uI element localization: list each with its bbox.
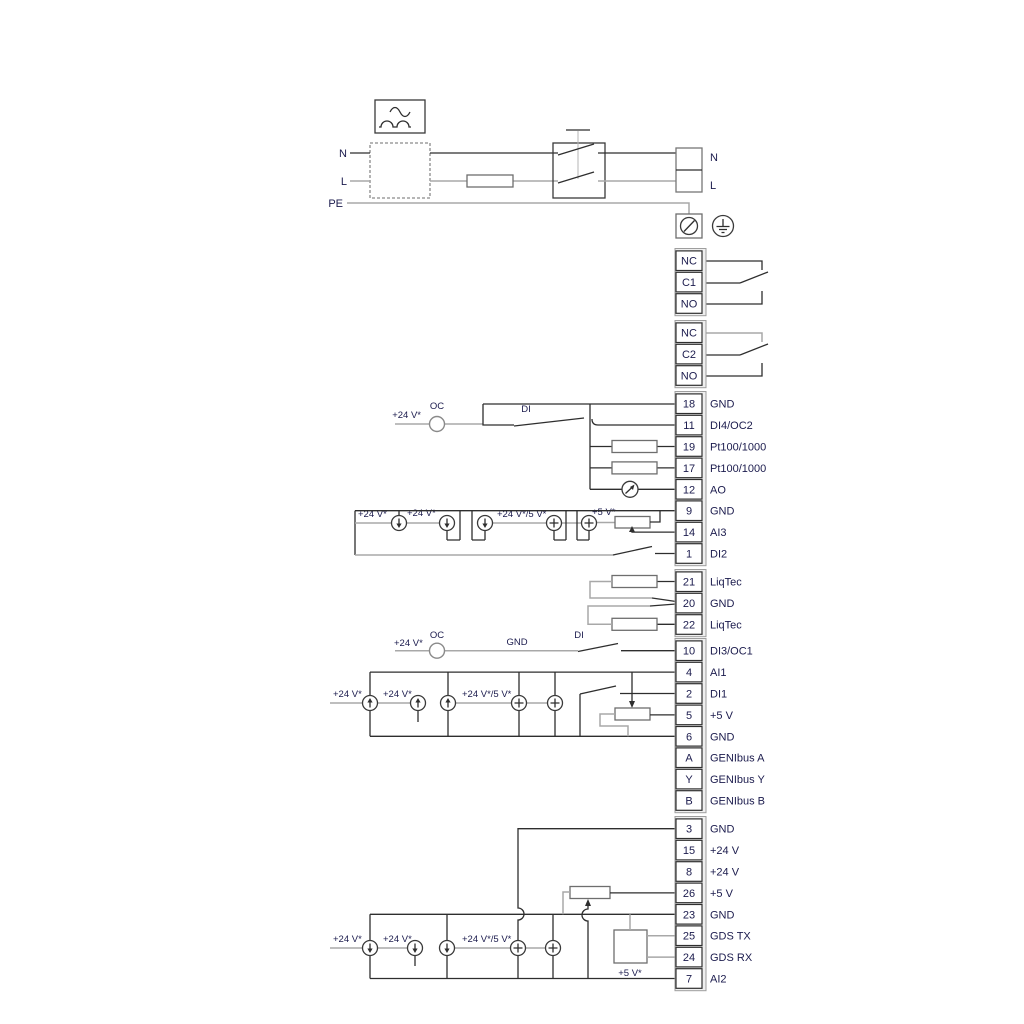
terminal-number: 24 bbox=[683, 952, 695, 964]
relay1-nc-wire bbox=[702, 261, 762, 270]
potentiometer-ai2 bbox=[570, 887, 610, 899]
c2-brackets bbox=[418, 672, 555, 736]
label-plus24v: +24 V* bbox=[392, 410, 421, 421]
label-l-right: L bbox=[710, 180, 716, 192]
terminal-group-relay1: NCC1NO bbox=[675, 249, 706, 316]
terminal-label: DI2 bbox=[710, 549, 727, 561]
current-source-icon bbox=[547, 516, 562, 531]
liqtec-wiring bbox=[588, 576, 676, 631]
terminal-label: GND bbox=[710, 506, 735, 518]
current-source-icon bbox=[440, 941, 455, 956]
label-n-right: N bbox=[710, 152, 718, 164]
current-source-icon bbox=[511, 941, 526, 956]
label-oc: OC bbox=[430, 630, 444, 641]
switch-blade-n bbox=[558, 144, 594, 155]
label-plus24v-5v: +24 V*/5 V* bbox=[462, 934, 512, 945]
terminal-label: +24 V bbox=[710, 845, 740, 857]
label-plus24v: +24 V* bbox=[394, 638, 423, 649]
liqtec21-gnd-conn bbox=[652, 598, 676, 602]
label-pe: PE bbox=[328, 198, 343, 210]
cluster-ai3-wiring: +24 V* +24 V* +24 V*/5 V* +5 V* bbox=[355, 507, 676, 555]
current-source-layer bbox=[363, 516, 597, 956]
terminal-label: AI1 bbox=[710, 667, 727, 679]
ai3-wire bbox=[632, 531, 676, 532]
potentiometer-ai3 bbox=[615, 517, 650, 529]
di4-switch-blade bbox=[514, 418, 584, 426]
gds-sensor-box bbox=[614, 930, 647, 963]
terminal-number: 2 bbox=[686, 689, 692, 701]
terminal-number: B bbox=[685, 796, 692, 808]
terminal-label: GND bbox=[710, 824, 735, 836]
pt100-resistor-19 bbox=[612, 441, 657, 453]
label-di: DI bbox=[521, 404, 531, 415]
current-source-icon bbox=[512, 696, 527, 711]
terminal-label: GENIbus B bbox=[710, 796, 765, 808]
terminal-group-relay2: NCC2NO bbox=[675, 321, 706, 388]
current-source-icon bbox=[363, 941, 378, 956]
current-source-icon bbox=[441, 696, 456, 711]
current-source-icon bbox=[440, 516, 455, 531]
terminal-number: 7 bbox=[686, 974, 692, 986]
c3-brackets bbox=[415, 914, 553, 978]
terminal-number: NO bbox=[681, 299, 698, 311]
terminal-number: 10 bbox=[683, 646, 695, 658]
terminal-label: Pt100/1000 bbox=[710, 463, 766, 475]
terminal-number: 11 bbox=[683, 420, 694, 432]
relay2-wiring bbox=[702, 333, 768, 376]
relay2-no-wire bbox=[702, 363, 762, 376]
label-plus24v: +24 V* bbox=[383, 689, 412, 700]
label-di: DI bbox=[574, 630, 584, 641]
di4-stub bbox=[483, 404, 514, 425]
label-plus5v: +5 V* bbox=[592, 507, 616, 518]
terminal-label: Pt100/1000 bbox=[710, 442, 766, 454]
terminal-number: 12 bbox=[683, 484, 695, 496]
current-source-icon bbox=[408, 941, 423, 956]
label-l-left: L bbox=[341, 176, 347, 188]
terminal-number: 3 bbox=[686, 824, 692, 836]
relay2-nc-wire bbox=[702, 333, 762, 342]
terminal-label: DI4/OC2 bbox=[710, 420, 753, 432]
terminal-number: 6 bbox=[686, 731, 692, 743]
wiring-diagram: N L PE N L bbox=[0, 0, 1024, 1024]
terminal-number: 21 bbox=[683, 577, 695, 589]
terminal-group-io1: 18GND11DI4/OC219Pt100/100017Pt100/100012… bbox=[675, 392, 766, 566]
terminal-group-io2: 10DI3/OC14AI12DI15+5 V6GNDAGENIbus AYGEN… bbox=[675, 639, 765, 813]
label-plus5v: +5 V* bbox=[618, 968, 642, 979]
gnd3-wire bbox=[518, 829, 676, 979]
terminal-number: 18 bbox=[683, 399, 695, 411]
label-plus24v: +24 V* bbox=[383, 934, 412, 945]
terminal-number: 1 bbox=[686, 549, 692, 561]
label-plus24v-5v: +24 V*/5 V* bbox=[462, 689, 512, 700]
terminal-number: NC bbox=[681, 256, 697, 268]
gds-tx-rx-wires bbox=[647, 936, 676, 957]
terminal-number: 5 bbox=[686, 710, 692, 722]
terminal-number: C2 bbox=[682, 349, 696, 361]
terminal-number: 8 bbox=[686, 867, 692, 879]
terminal-number: 9 bbox=[686, 506, 692, 518]
di3-switch-blade bbox=[578, 644, 618, 652]
terminal-strip-layer: NCC1NONCC2NO18GND11DI4/OC219Pt100/100017… bbox=[675, 249, 766, 991]
relay1-wiring bbox=[702, 261, 768, 304]
terminal-label: +24 V bbox=[710, 867, 740, 879]
terminal-label: GND bbox=[710, 598, 735, 610]
relay1-no-wire bbox=[702, 291, 762, 304]
terminal-number: 17 bbox=[683, 463, 695, 475]
di2-switch-blade bbox=[613, 547, 652, 556]
label-n-left: N bbox=[339, 148, 347, 160]
label-plus24v: +24 V* bbox=[407, 508, 436, 519]
di4-wire bbox=[592, 419, 676, 425]
terminal-label: GENIbus Y bbox=[710, 774, 765, 786]
terminal-number: C1 bbox=[682, 277, 696, 289]
terminal-number: 22 bbox=[683, 620, 695, 632]
terminal-group-liqtec: 21LiqTec20GND22LiqTec bbox=[675, 570, 742, 637]
terminal-number: 25 bbox=[683, 931, 695, 943]
terminal-number: 15 bbox=[683, 845, 695, 857]
pot-ai2-gnd-conn bbox=[563, 892, 570, 914]
open-collector-icon bbox=[430, 643, 445, 658]
terminal-number: 14 bbox=[683, 527, 695, 539]
current-source-icon bbox=[548, 696, 563, 711]
label-plus24v: +24 V* bbox=[333, 934, 362, 945]
pot-ai2-wiper-arrow bbox=[585, 899, 591, 906]
relay1-contact-blade bbox=[740, 272, 768, 283]
label-plus24v: +24 V* bbox=[333, 689, 362, 700]
current-source-icon bbox=[546, 941, 561, 956]
terminal-label: +5 V bbox=[710, 710, 734, 722]
terminal-number: 4 bbox=[686, 667, 692, 679]
terminal-label: GDS TX bbox=[710, 931, 751, 943]
io3-wiring: +24 V* +24 V* +24 V*/5 V* +5 V* bbox=[330, 829, 676, 979]
terminal-label: +5 V bbox=[710, 888, 734, 900]
terminal-label: AI3 bbox=[710, 527, 727, 539]
terminal-number: 20 bbox=[683, 598, 695, 610]
terminal-number: 26 bbox=[683, 888, 695, 900]
potentiometer-ai1 bbox=[615, 708, 650, 720]
terminal-label: LiqTec bbox=[710, 620, 742, 632]
terminal-number: 23 bbox=[683, 909, 695, 921]
terminal-label: AI2 bbox=[710, 974, 727, 986]
io2-wiring: +24 V* OC GND DI +24 V* +24 V* +24 V*/5 … bbox=[330, 630, 676, 736]
open-collector-icon bbox=[430, 417, 445, 432]
fuse bbox=[467, 175, 513, 187]
terminal-number: Y bbox=[685, 774, 693, 786]
ac-supply-icon bbox=[375, 100, 425, 133]
pot-ai2-wiper-feed bbox=[582, 905, 588, 979]
current-source-icon bbox=[478, 516, 493, 531]
pot-ai1-wiper-arrow bbox=[629, 701, 635, 708]
liqtec22-gnd-conn bbox=[650, 604, 676, 606]
terminal-label: GENIbus A bbox=[710, 753, 765, 765]
terminal-label: LiqTec bbox=[710, 577, 742, 589]
terminal-number: A bbox=[685, 753, 693, 765]
terminal-label: AO bbox=[710, 484, 726, 496]
io1-wiring: +24 V* OC DI bbox=[392, 401, 676, 497]
liqtec-sensor-22 bbox=[612, 618, 657, 630]
mains-section: N L PE N L bbox=[328, 100, 733, 238]
label-oc: OC bbox=[430, 401, 444, 412]
relay2-contact-blade bbox=[740, 344, 768, 355]
liqtec-sensor-21 bbox=[612, 576, 657, 588]
terminal-label: GND bbox=[710, 731, 735, 743]
mains-switch-box bbox=[553, 143, 605, 198]
filter-box bbox=[370, 143, 430, 198]
terminal-number: NO bbox=[681, 371, 698, 383]
current-source-icon bbox=[582, 516, 597, 531]
terminal-label: DI1 bbox=[710, 689, 727, 701]
terminal-label: DI3/OC1 bbox=[710, 646, 753, 658]
terminal-label: GDS RX bbox=[710, 952, 753, 964]
terminal-label: GND bbox=[710, 399, 735, 411]
current-source-icon bbox=[392, 516, 407, 531]
label-gnd: GND bbox=[506, 637, 527, 648]
di1-switch-blade bbox=[580, 686, 616, 694]
pot-ai3-top-conn bbox=[650, 511, 660, 522]
current-source-icon bbox=[411, 696, 426, 711]
terminal-label: GND bbox=[710, 909, 735, 921]
terminal-number: 19 bbox=[683, 442, 695, 454]
earth-symbol-bars bbox=[717, 219, 730, 233]
pt100-resistor-17 bbox=[612, 462, 657, 474]
wire-pe bbox=[347, 203, 689, 214]
terminal-group-io3: 3GND15+24 V8+24 V26+5 V23GND25GDS TX24GD… bbox=[675, 817, 753, 991]
switch-blade-l bbox=[558, 172, 594, 183]
terminal-number: NC bbox=[681, 328, 697, 340]
current-source-icon bbox=[363, 696, 378, 711]
